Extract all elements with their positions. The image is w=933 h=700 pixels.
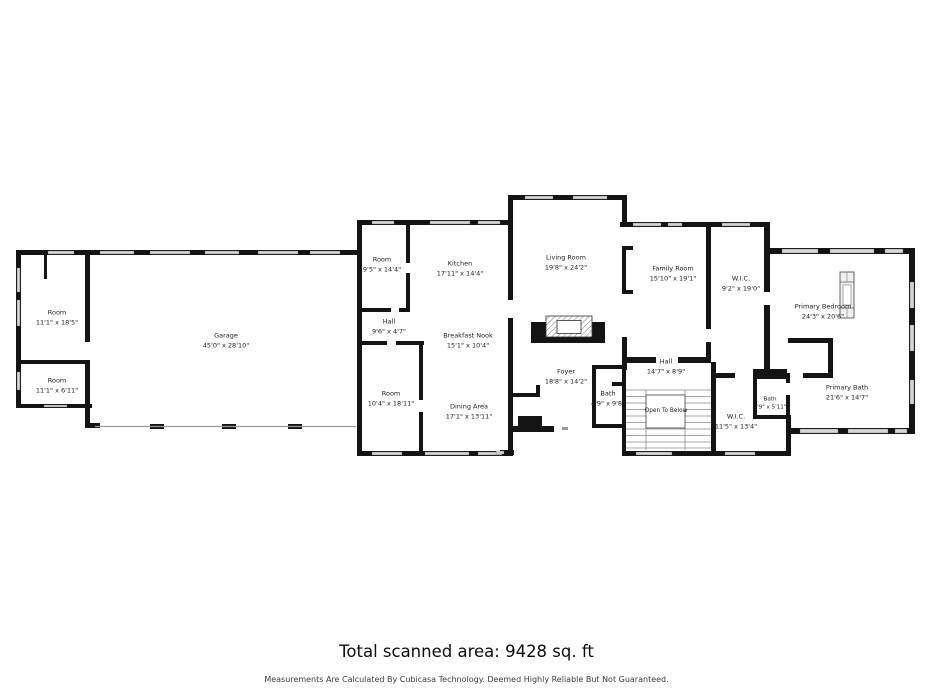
room-dims: 11'1" x 18'5" (36, 318, 78, 328)
room-name: Kitchen (437, 259, 483, 269)
total-scanned-area: Total scanned area: 9428 sq. ft (0, 642, 933, 661)
room-dims: 9'2" x 19'0" (722, 284, 760, 294)
room-dims: 45'0" x 28'10" (203, 341, 249, 351)
room-dims: 18'8" x 14'2" (545, 377, 587, 387)
room-dims: 21'6" x 14'7" (826, 393, 868, 403)
room-label-kitchen: Kitchen 17'11" x 14'4" (437, 259, 483, 279)
room-name: Room (36, 308, 78, 318)
room-dims: 19'8" x 24'2" (545, 263, 587, 273)
room-label-hall-1: Hall 9'6" x 4'7" (372, 317, 406, 337)
room-name: Garage (203, 331, 249, 341)
room-name: Room (363, 255, 401, 265)
room-name: W.I.C. (715, 412, 757, 422)
room-label-foyer: Foyer 18'8" x 14'2" (545, 367, 587, 387)
room-name: Breakfast Nook (443, 331, 493, 341)
room-name: Room (36, 376, 78, 386)
room-name: Dining Area (446, 402, 492, 412)
room-dims: 15'1" x 10'4" (443, 341, 493, 351)
room-dims: 14'7" x 8'9" (647, 367, 685, 377)
fireplace-icon (531, 316, 605, 343)
room-name: Room (368, 389, 414, 399)
room-dims: 4'9" x 9'8" (591, 399, 625, 409)
room-dims: 11'1" x 6'11" (36, 386, 78, 396)
room-name: Primary Bath (826, 383, 868, 393)
disclaimer-text: Measurements Are Calculated By Cubicasa … (0, 675, 933, 684)
room-name: Primary Bedroom (795, 302, 852, 312)
room-dims: 24'3" x 20'6" (795, 312, 852, 322)
room-label-bath-2: Bath 4'9" x 5'11" (754, 396, 787, 413)
room-dims: 17'11" x 14'4" (437, 269, 483, 279)
room-label-family-room: Family Room 15'10" x 19'1" (650, 264, 696, 284)
room-name: Living Room (545, 253, 587, 263)
room-label-room-4: Room 10'4" x 18'11" (368, 389, 414, 409)
room-dims: 9'6" x 4'7" (372, 327, 406, 337)
room-name: Hall (372, 317, 406, 327)
room-label-primary-bedroom: Primary Bedroom 24'3" x 20'6" (795, 302, 852, 322)
room-dims: 11'5" x 13'4" (715, 422, 757, 432)
room-dims: 17'1" x 13'11" (446, 412, 492, 422)
room-name: Hall (647, 357, 685, 367)
room-name: Foyer (545, 367, 587, 377)
room-label-room-2: Room 11'1" x 6'11" (36, 376, 78, 396)
room-dims: 4'9" x 5'11" (754, 404, 787, 412)
room-dims: 9'5" x 14'4" (363, 265, 401, 275)
room-dims: 15'10" x 19'1" (650, 274, 696, 284)
room-name: W.I.C. (722, 274, 760, 284)
room-label-room-1: Room 11'1" x 18'5" (36, 308, 78, 328)
room-dims: 10'4" x 18'11" (368, 399, 414, 409)
room-label-primary-bath: Primary Bath 21'6" x 14'7" (826, 383, 868, 403)
open-to-below-label: Open To Below (645, 408, 688, 414)
room-name: Bath (754, 396, 787, 404)
room-label-dining-area: Dining Area 17'1" x 13'11" (446, 402, 492, 422)
room-label-garage: Garage 45'0" x 28'10" (203, 331, 249, 351)
room-label-breakfast-nook: Breakfast Nook 15'1" x 10'4" (443, 331, 493, 351)
room-name: Family Room (650, 264, 696, 274)
room-label-bath-1: Bath 4'9" x 9'8" (591, 389, 625, 409)
room-label-hall-2: Hall 14'7" x 8'9" (647, 357, 685, 377)
room-label-living-room: Living Room 19'8" x 24'2" (545, 253, 587, 273)
room-label-room-3: Room 9'5" x 14'4" (363, 255, 401, 275)
room-label-wic-2: W.I.C. 11'5" x 13'4" (715, 412, 757, 432)
room-label-wic-1: W.I.C. 9'2" x 19'0" (722, 274, 760, 294)
room-name: Bath (591, 389, 625, 399)
